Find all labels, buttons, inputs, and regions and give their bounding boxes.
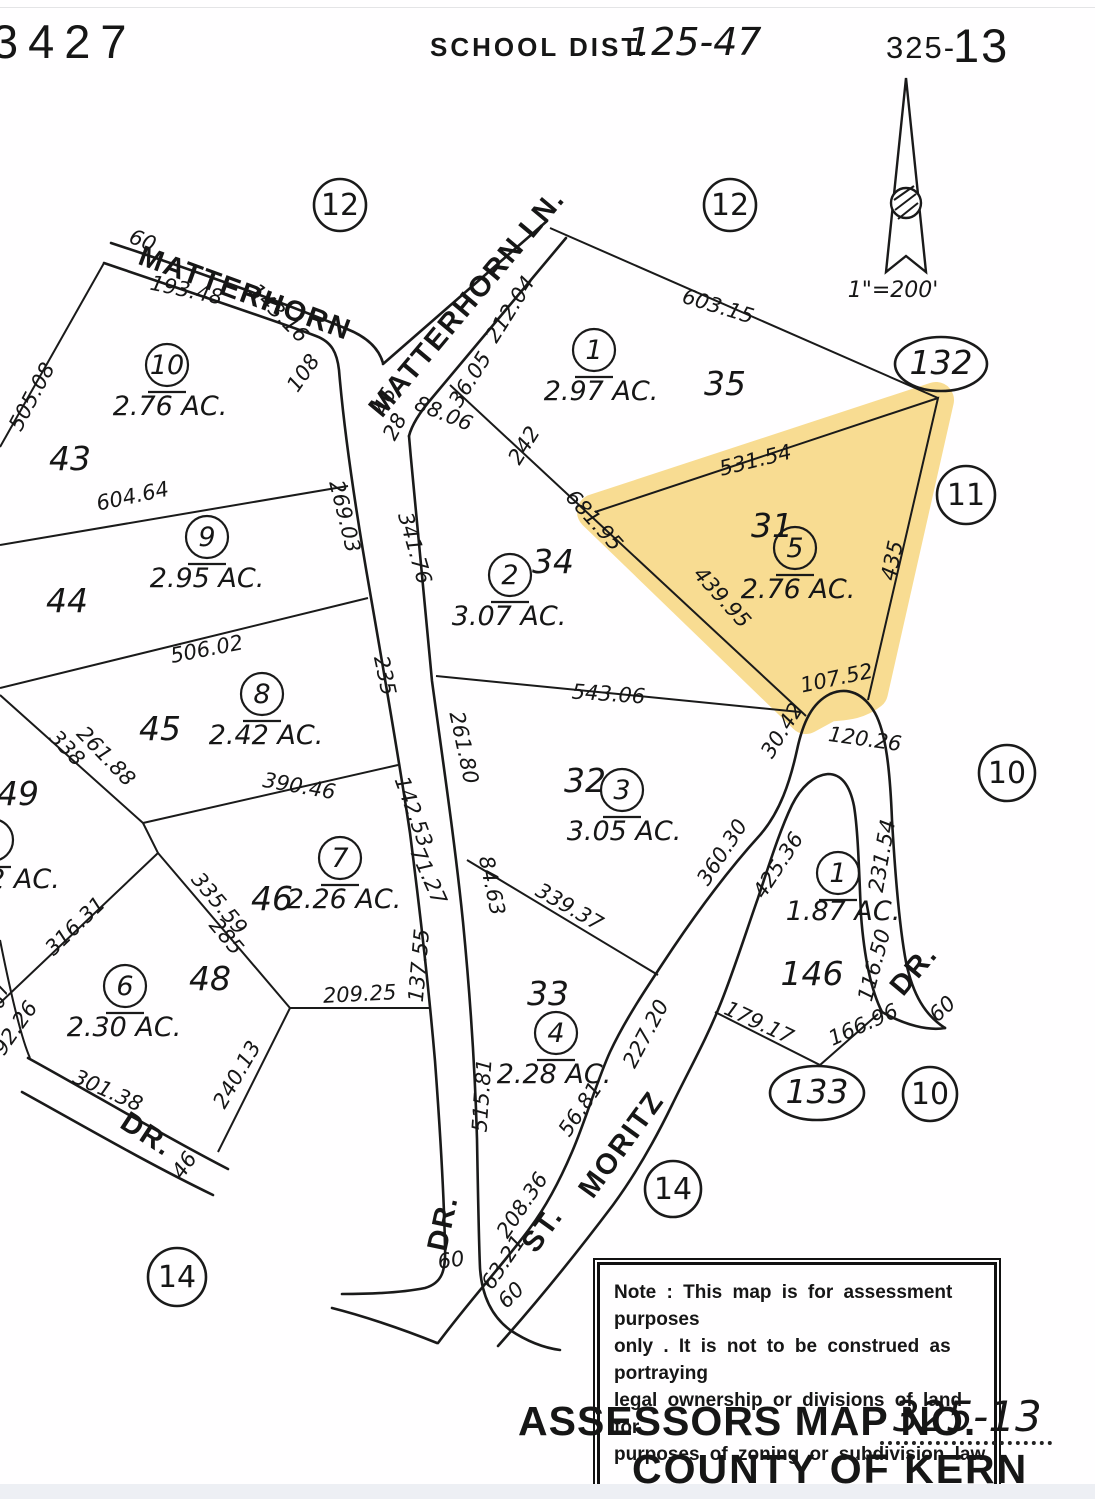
dimension-label: 506.02 [168, 630, 245, 668]
dimension-label: 36.05 [444, 347, 496, 411]
dimension-label: 390.46 [261, 768, 338, 804]
street-name-label: DR. [115, 1106, 179, 1163]
parcel-marker[interactable]: 42.28 AC.33 [497, 974, 612, 1090]
dimension-label: 242 [503, 422, 545, 469]
dimension-label: 108 [282, 350, 325, 397]
parcel-number: 8 [253, 679, 270, 710]
parcel-number: 2 [501, 560, 518, 591]
parcel-acreage: 2.95 AC. [150, 563, 265, 594]
dimension-label: 84.63 [474, 854, 510, 918]
parcel-marker[interactable]: 102.76 AC.43 [49, 344, 227, 478]
reference-number: 132 [910, 343, 973, 382]
dimension-label: 235 [369, 653, 401, 697]
street-name-label: DR. [884, 938, 944, 1001]
dimension-label: 71.27 [405, 844, 452, 909]
parcel-number: 3 [613, 775, 630, 806]
scan-edge-strip [0, 1484, 1095, 1499]
dimension-label: 60 [924, 991, 960, 1027]
parcel-marker[interactable]: 72.26 AC.46 [251, 837, 401, 918]
parcel-number: 10 [150, 350, 184, 381]
parcel-acreage: 2 AC. [0, 864, 60, 895]
lot-number: 31 [751, 506, 793, 545]
dimension-label: 261.80 [444, 709, 483, 786]
parcel-number: 9 [198, 522, 215, 553]
parcel-acreage: 2.97 AC. [544, 376, 659, 407]
parcel-marker[interactable]: 33.05 AC.32 [564, 761, 681, 847]
north-arrow-body [886, 78, 926, 272]
parcel-number: 1 [829, 858, 846, 889]
scale-label: 1"=200' [848, 278, 939, 303]
parcel-acreage: 3.07 AC. [452, 601, 567, 632]
lot-number: 34 [532, 542, 574, 581]
assessor-map-page: 3427 SCHOOL DIST. 125-47 325- 13 [0, 0, 1095, 1499]
dimension-label: 603.15 [679, 284, 756, 328]
dimension-label: 227.20 [618, 996, 674, 1072]
reference-circle: 133 [770, 1066, 864, 1120]
dimension-label: 166.96 [825, 999, 902, 1051]
lot-number: 44 [46, 581, 88, 620]
reference-number: 14 [158, 1260, 196, 1295]
reference-circle: 10 [979, 745, 1035, 801]
reference-circle: 12 [314, 179, 366, 231]
reference-number: 10 [911, 1077, 949, 1112]
parcel-acreage: 2.30 AC. [67, 1012, 182, 1043]
lot-number: 33 [527, 974, 569, 1013]
reference-circle: 14 [148, 1248, 206, 1306]
reference-number: 12 [321, 188, 359, 223]
parcel-marker[interactable]: 23.07 AC.34 [452, 542, 574, 632]
parcel-marker[interactable]: 62.30 AC.48 [67, 959, 231, 1043]
lot-number: 32 [564, 761, 606, 800]
dimension-label: 341.76 [393, 509, 436, 586]
dimension-label: 142.53 [390, 773, 438, 850]
parcel-acreage: 2.42 AC. [209, 720, 324, 751]
lot-number: 48 [189, 959, 231, 998]
reference-number: 11 [947, 478, 985, 513]
reference-number: 14 [654, 1172, 692, 1207]
dimension-label: 120.26 [827, 722, 903, 756]
reference-number: 12 [711, 188, 749, 223]
dimension-label: 116.50 [853, 927, 895, 1004]
dimension-label: 179.17 [721, 996, 798, 1049]
lot-number: 46 [251, 879, 293, 918]
title-map-number: 325-13 [893, 1392, 1042, 1441]
parcel-number-circle [0, 819, 13, 861]
reference-number: 133 [786, 1072, 849, 1111]
parcel-acreage: 3.05 AC. [567, 816, 682, 847]
lot-number: 49 [0, 774, 39, 813]
dimension-label: 339.37 [532, 878, 608, 936]
parcel-marker[interactable]: 82.42 AC.45 [139, 673, 323, 751]
parcel-acreage: 2.76 AC. [741, 574, 856, 605]
parcel-number: 7 [331, 843, 348, 874]
road-junction-south-edge [332, 1308, 437, 1343]
dimension-label: 316.31 [40, 892, 110, 960]
dimension-label: 604.64 [94, 477, 171, 516]
dimension-label: 269.03 [324, 478, 365, 555]
north-arrow [886, 78, 926, 272]
dimension-label: 209.25 [322, 980, 397, 1008]
street-name-label: DR. [422, 1192, 465, 1253]
reference-circle: 10 [903, 1067, 957, 1121]
parcel-number: 1 [585, 335, 602, 366]
parcel-number: 6 [116, 971, 133, 1002]
parcel-acreage: 1.87 AC. [786, 896, 901, 927]
dimension-label: 505.08 [4, 359, 60, 435]
parcel-marker[interactable]: 52 AC.49 [0, 774, 60, 895]
dimension-label: 543.06 [571, 679, 646, 708]
parcel-acreage: 2.26 AC. [287, 884, 402, 915]
lot-number: 43 [49, 439, 91, 478]
lot-number: 45 [139, 709, 181, 748]
parcel-number: 4 [547, 1018, 564, 1049]
lot-number: 146 [781, 954, 844, 993]
dimension-label: 515.81 [467, 1058, 496, 1133]
parcel-number: 5 [0, 825, 1, 856]
parcel-acreage: 2.76 AC. [113, 391, 228, 422]
reference-circle: 14 [645, 1161, 701, 1217]
parcel-marker[interactable]: 12.97 AC.35 [544, 329, 746, 407]
lot-number: 35 [704, 364, 746, 403]
parcel-acreage: 2.28 AC. [497, 1059, 612, 1090]
reference-number: 10 [988, 756, 1026, 791]
reference-circle: 12 [704, 179, 756, 231]
title-dotted-underline [880, 1441, 1052, 1445]
reference-circle: 11 [937, 466, 995, 524]
